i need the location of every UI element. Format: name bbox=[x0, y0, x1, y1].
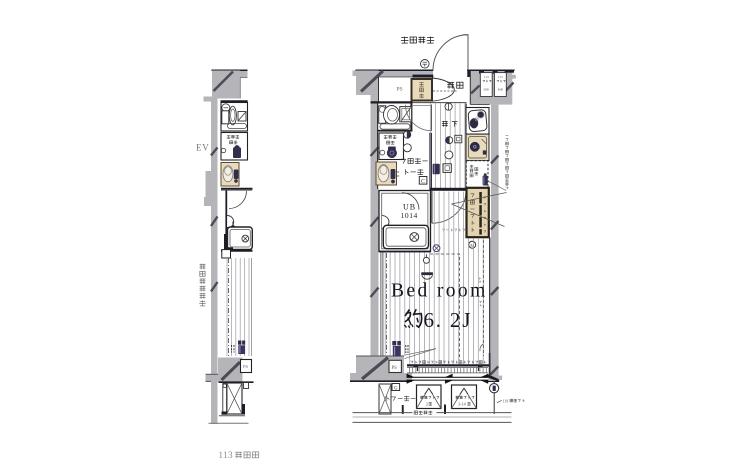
svg-text:MB: MB bbox=[484, 88, 490, 92]
svg-text:EV: EV bbox=[196, 143, 210, 153]
svg-text:PS: PS bbox=[243, 364, 249, 369]
svg-text:1014: 1014 bbox=[401, 211, 418, 220]
svg-text:C: C bbox=[421, 179, 425, 185]
svg-text:MB: MB bbox=[498, 88, 504, 92]
svg-text:PS: PS bbox=[392, 366, 398, 371]
svg-text:115: 115 bbox=[498, 75, 503, 79]
svg-text:113: 113 bbox=[484, 75, 489, 79]
svg-text:113: 113 bbox=[219, 450, 234, 460]
svg-text:6. 2J: 6. 2J bbox=[424, 308, 473, 332]
svg-text:G: G bbox=[394, 386, 398, 391]
svg-text:119: 119 bbox=[503, 399, 509, 403]
svg-text:3-14: 3-14 bbox=[458, 402, 467, 407]
svg-text:PS: PS bbox=[397, 87, 403, 93]
svg-text:2: 2 bbox=[426, 402, 428, 407]
svg-text:Bed room: Bed room bbox=[391, 281, 488, 302]
